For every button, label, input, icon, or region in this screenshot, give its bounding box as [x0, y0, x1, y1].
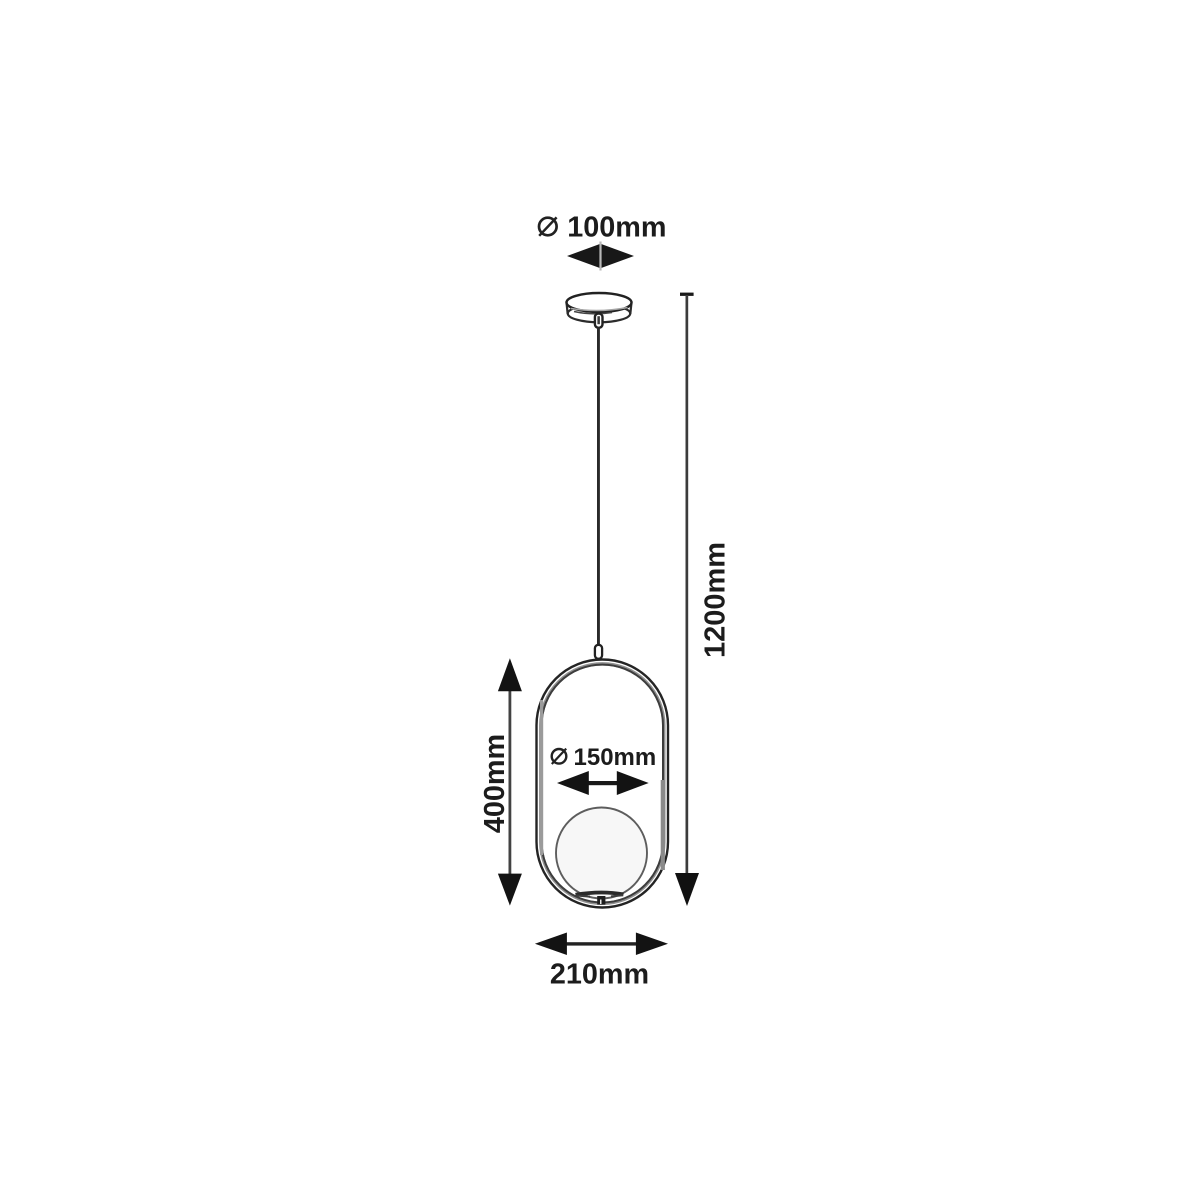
svg-text:150mm: 150mm: [574, 744, 657, 771]
svg-text:210mm: 210mm: [550, 959, 649, 991]
svg-text:100mm: 100mm: [567, 212, 666, 244]
svg-text:400mm: 400mm: [479, 734, 511, 833]
svg-text:1200mm: 1200mm: [700, 542, 732, 658]
